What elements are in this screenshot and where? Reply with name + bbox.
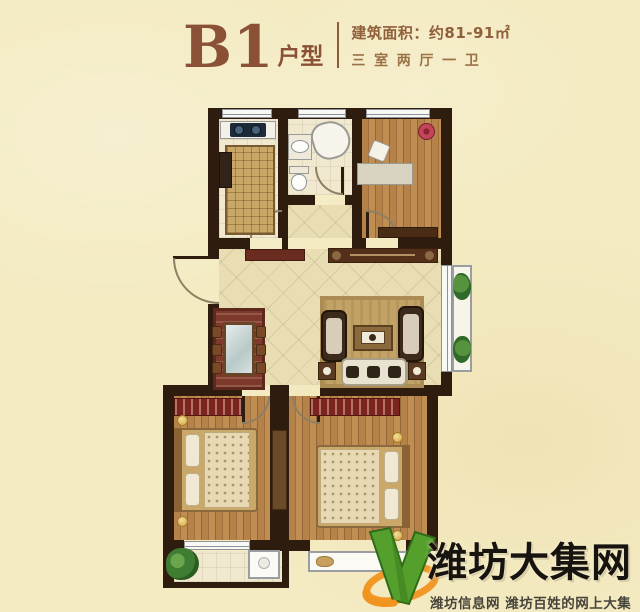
dining-table — [223, 322, 255, 376]
wall-bath-south-a — [278, 195, 315, 205]
dining-chair-l2 — [212, 344, 222, 356]
dining-chair-r3 — [256, 362, 266, 374]
bay-window-pet — [316, 556, 334, 567]
wall-balcony-left-east — [282, 551, 289, 588]
bedroom-left-window — [184, 541, 250, 550]
wardrobe-bedroom-right — [310, 398, 400, 416]
entry-door-arc — [173, 258, 219, 304]
wardrobe-bedroom-left — [174, 398, 242, 416]
bed-left-pillow-2 — [185, 473, 200, 506]
balcony-plant-top — [453, 273, 471, 300]
watermark-site-name: 潍坊大集网 — [427, 541, 632, 585]
study-desk — [357, 163, 413, 185]
wardrobe-middle — [272, 430, 287, 510]
wall-bedroom-right-east — [427, 396, 438, 540]
sink-basin — [291, 140, 309, 153]
side-table-right-decor — [413, 367, 421, 375]
tv-cabinet-knob-right — [425, 251, 434, 260]
dining-chair-r1 — [256, 326, 266, 338]
screenshot-canvas: B1 户型 建筑面积：约81-91㎡ 三室两厅一卫 — [0, 0, 640, 612]
title-divider — [337, 22, 339, 68]
bed-left-headboard — [174, 428, 182, 512]
kitchen-window — [222, 109, 272, 118]
bed-right-pillow-2 — [384, 488, 399, 520]
study-cabinet — [378, 227, 438, 238]
tv-cabinet-knob-left — [332, 251, 341, 260]
kitchen-counter — [225, 145, 275, 235]
sofa-pillow-1 — [346, 366, 359, 378]
shoe-cabinet — [245, 249, 305, 261]
wall-left-upper — [208, 108, 219, 258]
burner-left-icon — [234, 125, 244, 135]
dining-chair-l3 — [212, 362, 222, 374]
wall-balcony-left-bottom — [163, 582, 289, 588]
plan-code-suffix: 户型 — [277, 37, 323, 71]
washing-machine-door-icon — [258, 557, 270, 569]
hallway-floor — [288, 205, 352, 238]
wall-bedroom-right-south-a — [289, 540, 310, 551]
toilet-bowl — [291, 174, 307, 191]
coffee-table-item — [369, 334, 376, 341]
dining-chair-r2 — [256, 344, 266, 356]
bed-right-pillow-1 — [384, 451, 399, 483]
plan-title-block: B1 户型 建筑面积：约81-91㎡ 三室两厅一卫 — [183, 8, 510, 76]
plan-code: B1 — [183, 18, 274, 76]
flower-decor — [418, 123, 435, 140]
wall-mid-a — [208, 238, 250, 249]
bed-left-pillow-1 — [185, 434, 200, 467]
plan-info: 建筑面积：约81-91㎡ 三室两厅一卫 — [351, 22, 510, 76]
bathroom-window — [298, 109, 346, 118]
wall-bath-south-b — [345, 195, 362, 205]
bed-left-lamp-bottom — [177, 516, 188, 527]
burner-right-icon — [251, 125, 261, 135]
area-text: 建筑面积：约81-91㎡ — [351, 22, 510, 43]
tv-cabinet-line — [350, 254, 415, 256]
wall-bedrooms-north-b — [270, 385, 289, 396]
wall-right-upper — [441, 108, 452, 270]
bed-left-quilt — [204, 432, 250, 508]
wall-mid-b — [282, 238, 288, 249]
armchair-right-cushion — [403, 314, 419, 354]
bed-right-lamp-top — [392, 432, 403, 443]
bed-right-quilt — [320, 449, 380, 524]
fridge — [219, 152, 232, 188]
living-balcony-window — [441, 265, 452, 372]
rooms-text: 三室两厅一卫 — [351, 50, 510, 70]
sofa-pillow-3 — [388, 366, 401, 378]
bed-left-lamp-top — [177, 415, 188, 426]
armchair-left-cushion — [326, 318, 342, 354]
toilet-tank — [289, 166, 309, 174]
dining-chair-l1 — [212, 326, 222, 338]
sofa-pillow-2 — [367, 366, 380, 378]
study-window — [366, 109, 430, 118]
bed-right-headboard — [402, 445, 410, 528]
watermark-tagline: 潍坊信息网 潍坊百姓的网上大集 — [430, 592, 631, 612]
side-table-left-decor — [323, 367, 331, 375]
